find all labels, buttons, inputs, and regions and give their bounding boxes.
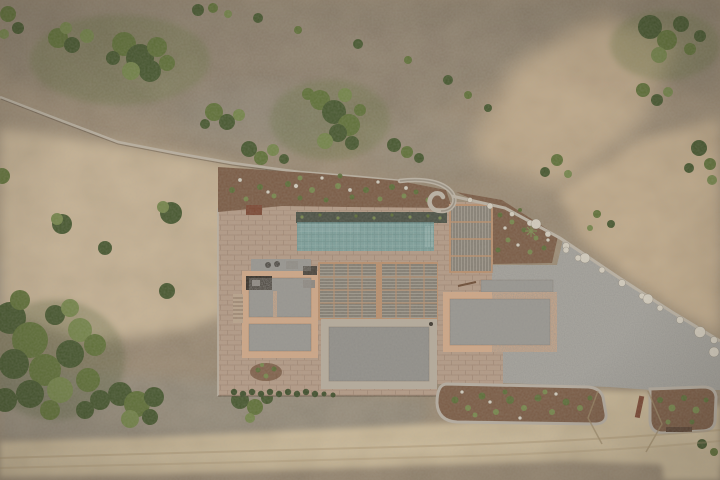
aerial-photo	[0, 0, 720, 480]
vignette	[0, 0, 720, 480]
aerial-photo-canvas	[0, 0, 720, 480]
